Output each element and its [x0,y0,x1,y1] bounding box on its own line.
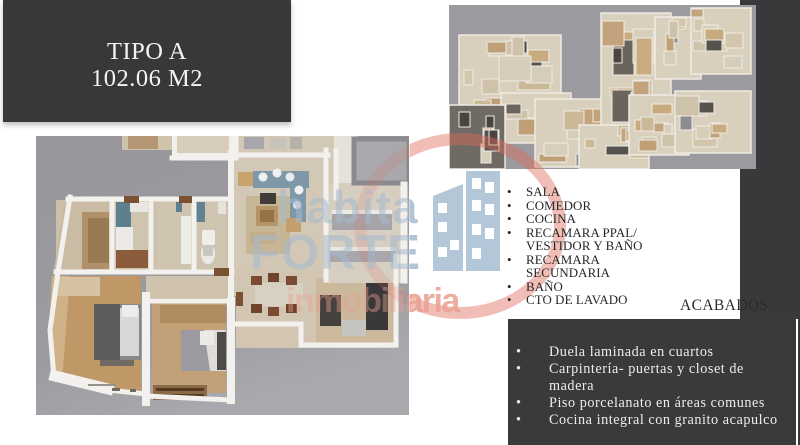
svg-text:FORTE: FORTE [250,226,421,280]
